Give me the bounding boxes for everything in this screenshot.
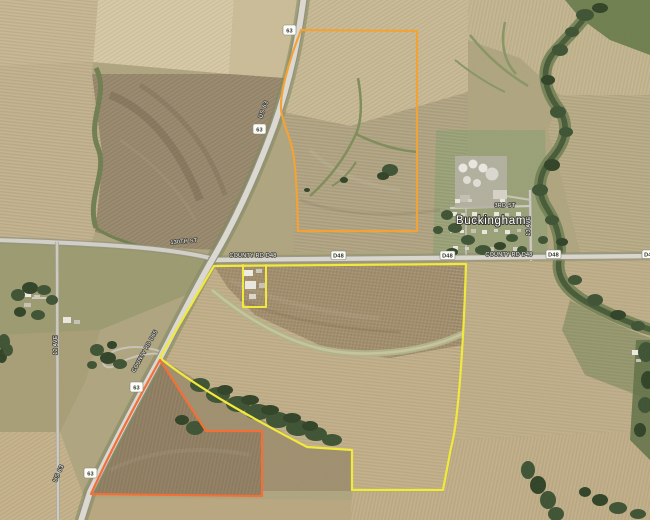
d48-shield: D48 (331, 251, 346, 260)
us63-shield-number: 63 (87, 472, 94, 478)
3rd-st-label: 3RD ST (495, 203, 516, 209)
us63-shield: 63 (253, 124, 266, 134)
d48-shield: D48 (642, 250, 650, 259)
us63-shield: 63 (130, 382, 143, 392)
county-rd-d48-label: COUNTY RD D48 (485, 252, 532, 258)
us63-shield: 63 (283, 25, 296, 35)
us63-shield-number: 63 (286, 29, 293, 35)
d48-shield-number: D48 (548, 253, 559, 259)
d48-shield: D48 (546, 250, 561, 259)
us63-shield-number: 63 (133, 386, 140, 392)
d48-shield: D48 (440, 251, 455, 260)
13-ave-label: 13 AVE (526, 216, 532, 235)
us63-shield-number: 63 (256, 128, 263, 134)
d48-shield-number: D48 (644, 253, 650, 259)
d48-shield-number: D48 (333, 254, 344, 260)
d48-shield-number: D48 (442, 254, 453, 260)
town-name-label: Buckingham (456, 215, 526, 227)
satellite-map[interactable]: 63 63 63 63 D48 D48 D48 D48 (0, 0, 650, 520)
us63-shield: 63 (84, 468, 97, 478)
county-rd-d48-label: COUNTY RD D48 (229, 253, 276, 259)
satellite-grain-overlay (0, 0, 650, 520)
12-ave-label: 12 AVE (53, 335, 59, 354)
